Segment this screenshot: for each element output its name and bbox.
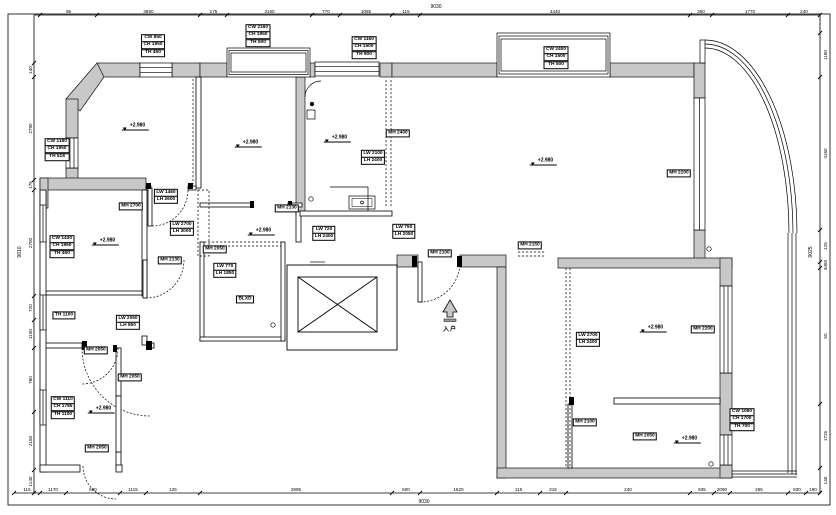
dimension-label: 2790 [28, 123, 33, 134]
dimension-label: 140 [823, 476, 828, 484]
partition [40, 291, 146, 295]
dimension-label: 1115 [128, 487, 138, 492]
hob-icon [307, 110, 315, 119]
dimension-label: 930 [793, 487, 801, 492]
wall-segment [40, 178, 146, 190]
window [40, 205, 46, 242]
floorplan-sheet: 9030 9030 9610 9025 95385017531607701085… [0, 0, 836, 515]
entry-threshold [444, 319, 456, 322]
jamb-cap [146, 183, 151, 189]
dimension-label: 3160 [264, 9, 275, 14]
door-leaf [116, 396, 121, 452]
wall-segment [200, 63, 227, 77]
dimension-label: 315 [549, 487, 557, 492]
wall-segment [610, 63, 694, 77]
door-swing [83, 466, 116, 499]
dimension-label: 240 [800, 9, 808, 14]
dimension-label: 760 [28, 376, 33, 384]
windows-layer [40, 33, 797, 477]
elevator-shaft [287, 262, 397, 350]
wall-segment [694, 63, 705, 98]
dimension-label: 175 [28, 181, 33, 189]
wall-segment [497, 267, 506, 478]
wall-segment [66, 99, 78, 138]
door-swing [152, 190, 188, 226]
dimension-label: 50 [823, 333, 828, 339]
wall-segment [720, 373, 732, 435]
dimension-label: 240 [624, 487, 632, 492]
window [315, 62, 379, 76]
dimension-label: 3460 [823, 259, 828, 270]
partition [300, 211, 392, 216]
wall-segment [497, 468, 732, 478]
jamb-cap [288, 201, 292, 208]
dimension-label: 140 [28, 66, 33, 74]
dim-total-top: 9030 [430, 4, 441, 10]
window [66, 138, 78, 168]
dimension-label: 2895 [291, 487, 302, 492]
dim-total-left: 9610 [17, 246, 23, 257]
partition [200, 242, 204, 341]
bay-window [227, 48, 310, 77]
dimension-label: 360 [697, 9, 705, 14]
partition [196, 77, 201, 188]
dimension-label: 2090 [717, 487, 728, 492]
dimension-label: 2150 [28, 435, 33, 446]
window [720, 286, 732, 373]
wall-segment [380, 63, 392, 77]
dimension-label: 1085 [361, 9, 372, 14]
curved-corner-window [700, 40, 797, 233]
dimension-label: 95 [66, 9, 72, 14]
wall-segment [720, 258, 732, 286]
bay-window [497, 33, 610, 77]
dimension-label: 4160 [823, 148, 828, 159]
dimension-label: 1140 [28, 476, 33, 486]
floor-drain-icon [709, 462, 713, 466]
window [140, 63, 172, 77]
dimension-label: 190 [809, 487, 817, 492]
floorplan-drawing: 9030 9030 9610 9025 95385017531607701085… [0, 0, 836, 515]
wall-segment [558, 258, 732, 268]
wall-segment [296, 77, 305, 215]
partition [200, 203, 252, 207]
jamb-cap [457, 256, 462, 267]
dimension-label: 1180 [823, 50, 828, 60]
wall-segment [310, 63, 315, 77]
floor-drains [271, 197, 713, 466]
door-leaf [143, 260, 147, 298]
jamb-cap [113, 345, 117, 352]
door-leaf [418, 262, 422, 302]
door-swing [146, 260, 184, 298]
dimension-label: 1150 [28, 329, 33, 339]
wall-segment [97, 63, 140, 77]
jamb-cap [82, 341, 87, 350]
floor-drain-icon [707, 247, 711, 251]
partition [200, 337, 285, 341]
dimension-label: 3850 [143, 9, 154, 14]
dimension-label: 125 [823, 242, 828, 250]
sink-icon [349, 196, 375, 209]
wall-segment [392, 63, 497, 77]
floor-drain-icon [271, 323, 275, 327]
dimension-label: 265 [755, 487, 763, 492]
partition [281, 242, 285, 341]
dimension-label: 1620 [453, 487, 464, 492]
door-arcs-layer [82, 188, 460, 499]
door-swing [82, 348, 118, 384]
dimension-label: 175 [210, 9, 218, 14]
dimension-label: 115 [23, 487, 31, 492]
dimension-label: 115 [402, 9, 410, 14]
dimension-label: 4440 [550, 9, 561, 14]
dim-total-bottom: 9030 [418, 499, 429, 505]
wall-segment [172, 63, 200, 77]
up-arrow-icon [443, 300, 457, 317]
window [40, 295, 46, 330]
dimension-label: 600 [402, 487, 410, 492]
floor-drain-icon [309, 197, 313, 201]
partitions-layer [40, 77, 720, 472]
partition [116, 348, 121, 396]
dimension-label: 600 [89, 487, 97, 492]
wall-segment [720, 465, 732, 478]
door-swing [420, 262, 460, 302]
jamb-cap [146, 341, 152, 350]
partition [40, 465, 80, 472]
wall-segment [460, 255, 506, 267]
dimension-label: 1725 [823, 430, 828, 441]
jamb-cap [412, 256, 417, 267]
entry-arrow [443, 300, 457, 322]
sink-drain [361, 201, 364, 204]
dimension-label: 115 [515, 487, 523, 492]
door-leaf [148, 188, 152, 226]
kitchen-fixtures [305, 81, 375, 211]
dimension-label: 720 [28, 304, 33, 312]
partition [116, 465, 122, 472]
dashed-layer [193, 79, 570, 468]
gas-point-icon [310, 102, 314, 106]
window [720, 435, 732, 465]
jamb-cap [250, 201, 254, 208]
partition [614, 398, 720, 404]
jamb-cap [569, 397, 574, 405]
wall-segment [694, 230, 705, 262]
sink-basin [352, 199, 372, 207]
dimension-label: 125 [169, 487, 177, 492]
window [694, 98, 705, 230]
jamb-cap [188, 183, 193, 189]
dim-total-right: 9025 [808, 246, 814, 257]
dimension-label: 935 [698, 487, 706, 492]
dimension-label: 1170 [48, 487, 58, 492]
window [40, 390, 46, 425]
counter-arc [305, 81, 321, 97]
dimension-label: 770 [322, 9, 330, 14]
dimension-label: 2700 [28, 237, 33, 248]
balcony-glazing [732, 233, 797, 477]
dimension-label: 1770 [745, 9, 756, 14]
